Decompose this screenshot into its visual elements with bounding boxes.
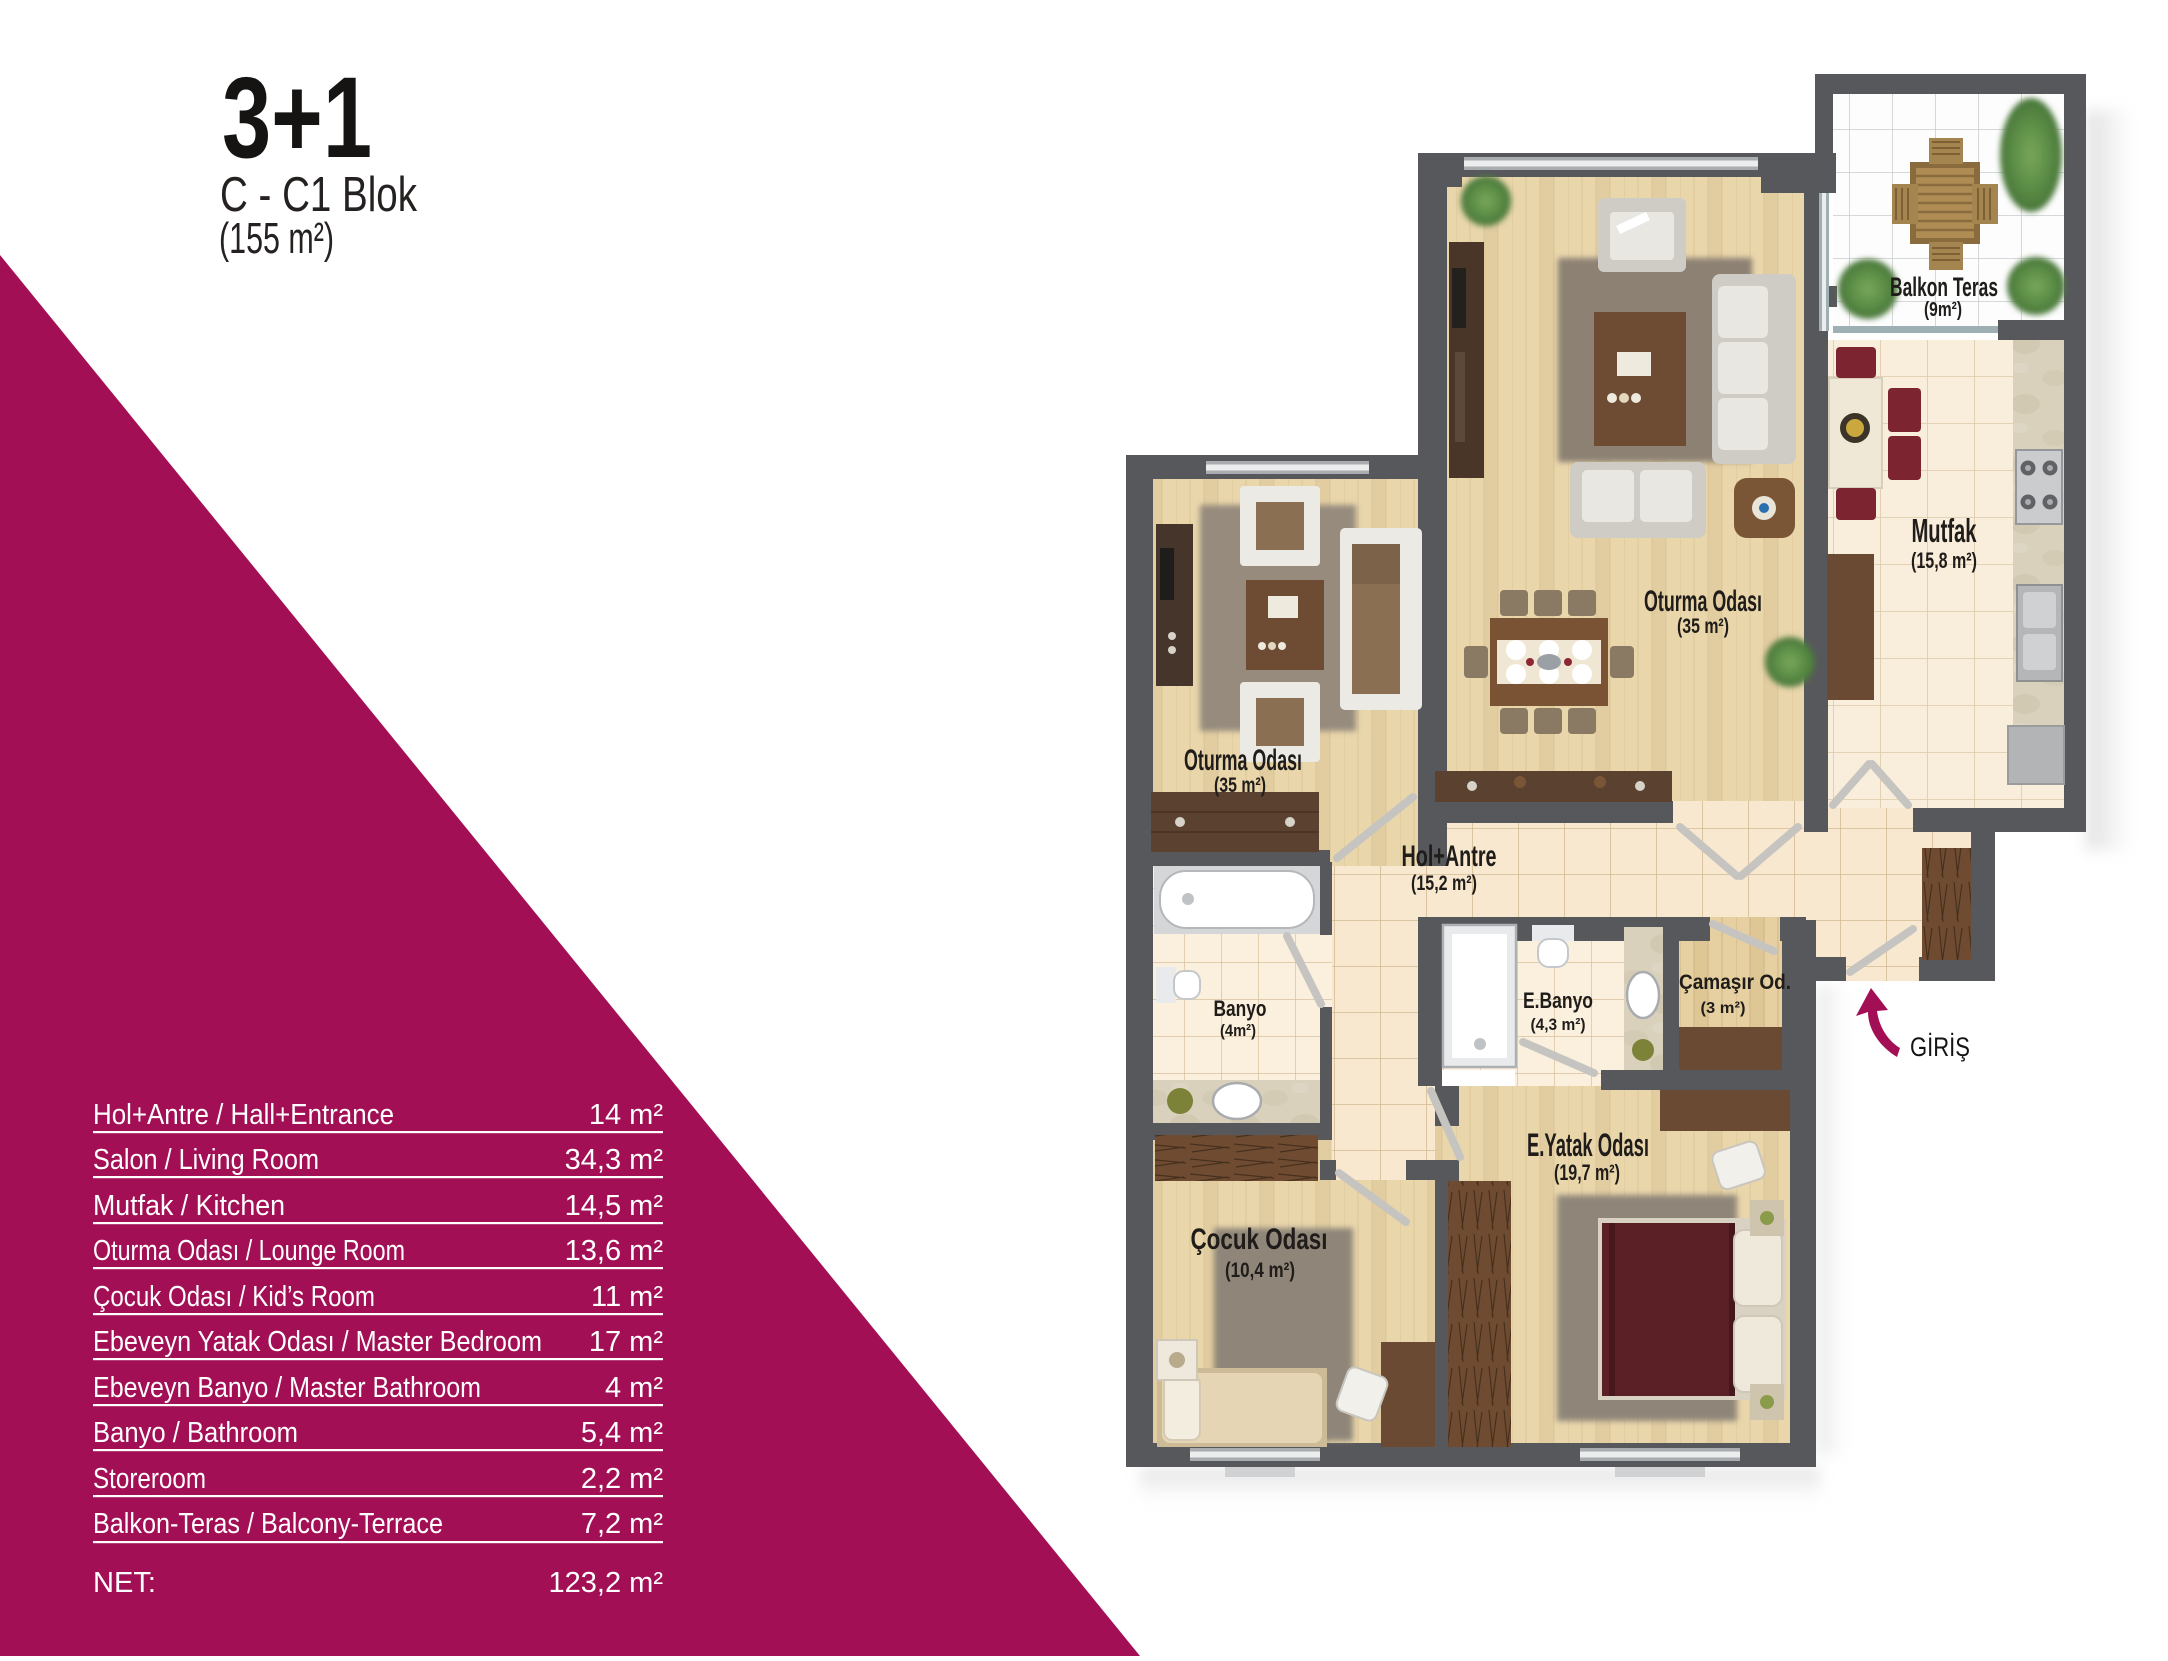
svg-text:Hol+Antre: Hol+Antre [1402,840,1497,873]
svg-text:Oturma Odası / Lounge Room: Oturma Odası / Lounge Room [93,1235,405,1267]
svg-text:GİRİŞ: GİRİŞ [1910,1031,1970,1062]
svg-text:Storeroom: Storeroom [93,1463,206,1495]
svg-text:(4m²): (4m²) [1220,1021,1256,1040]
svg-text:Balkon-Teras / Balcony-Terrace: Balkon-Teras / Balcony-Terrace [93,1508,443,1540]
svg-text:Çocuk Odası: Çocuk Odası [1191,1223,1328,1256]
svg-text:E.Banyo: E.Banyo [1523,988,1593,1013]
svg-text:(3 m²): (3 m²) [1701,1000,1746,1017]
svg-text:13,6 m²: 13,6 m² [565,1235,664,1267]
svg-text:(35 m²): (35 m²) [1214,774,1266,797]
svg-text:(19,7 m²): (19,7 m²) [1554,1160,1620,1185]
svg-text:NET:: NET: [93,1567,156,1599]
svg-text:Banyo: Banyo [1214,996,1267,1021]
svg-text:Balkon Teras: Balkon Teras [1890,272,1998,302]
svg-text:(15,8 m²): (15,8 m²) [1911,548,1977,573]
svg-text:Salon / Living Room: Salon / Living Room [93,1144,319,1176]
svg-text:34,3 m²: 34,3 m² [565,1144,664,1176]
svg-text:(155 m²): (155 m²) [219,214,334,263]
svg-text:17 m²: 17 m² [589,1326,663,1358]
svg-text:Mutfak: Mutfak [1912,512,1977,549]
svg-text:(4,3 m²): (4,3 m²) [1531,1015,1586,1034]
svg-text:(9m²): (9m²) [1924,299,1962,321]
svg-text:123,2 m²: 123,2 m² [549,1567,664,1599]
svg-text:Hol+Antre / Hall+Entrance: Hol+Antre / Hall+Entrance [93,1099,394,1131]
svg-text:Banyo / Bathroom: Banyo / Bathroom [93,1417,298,1449]
svg-text:(15,2 m²): (15,2 m²) [1411,872,1477,895]
svg-text:11 m²: 11 m² [591,1281,663,1313]
svg-text:3+1: 3+1 [222,54,372,182]
svg-text:E.Yatak Odası: E.Yatak Odası [1527,1127,1649,1163]
svg-text:(10,4 m²): (10,4 m²) [1225,1259,1295,1282]
svg-text:Ebeveyn Yatak Odası / Master B: Ebeveyn Yatak Odası / Master Bedroom [93,1326,542,1358]
svg-text:Mutfak / Kitchen: Mutfak / Kitchen [93,1190,285,1222]
svg-text:Ebeveyn Banyo / Master Bathroo: Ebeveyn Banyo / Master Bathroom [93,1372,481,1404]
svg-text:14 m²: 14 m² [589,1099,663,1131]
svg-text:4 m²: 4 m² [605,1372,663,1404]
svg-text:7,2 m²: 7,2 m² [581,1508,664,1540]
svg-text:Çocuk Odası / Kid’s Room: Çocuk Odası / Kid’s Room [93,1281,375,1313]
svg-text:Çamaşır Od.: Çamaşır Od. [1679,971,1791,994]
svg-text:(35 m²): (35 m²) [1677,615,1729,638]
svg-text:Oturma Odası: Oturma Odası [1644,585,1762,618]
svg-text:5,4 m²: 5,4 m² [581,1417,664,1449]
svg-text:2,2 m²: 2,2 m² [581,1463,664,1495]
svg-text:14,5 m²: 14,5 m² [565,1190,664,1222]
svg-text:Oturma Odası: Oturma Odası [1184,744,1302,777]
